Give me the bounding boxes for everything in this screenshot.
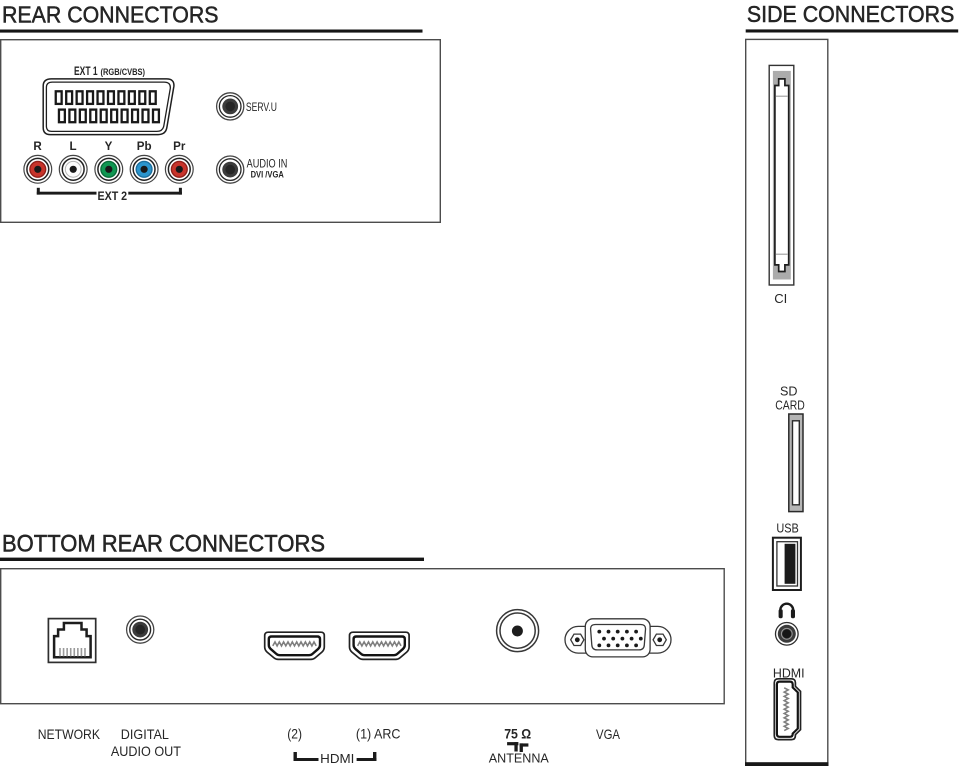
svg-text:DVI /VGA: DVI /VGA — [251, 170, 285, 180]
svg-text:Pb: Pb — [137, 140, 152, 153]
svg-text:NETWORK: NETWORK — [38, 726, 101, 742]
svg-text:SERV.U: SERV.U — [246, 100, 277, 114]
svg-text:HDMI: HDMI — [320, 751, 354, 766]
svg-text:SIDE CONNECTORS: SIDE CONNECTORS — [747, 1, 955, 27]
svg-text:REAR CONNECTORS: REAR CONNECTORS — [2, 1, 219, 27]
svg-text:CI: CI — [774, 291, 787, 306]
svg-text:(2): (2) — [287, 725, 302, 741]
svg-text:DIGITAL: DIGITAL — [121, 726, 169, 742]
svg-text:Y: Y — [105, 140, 113, 153]
svg-text:(RGB/CVBS): (RGB/CVBS) — [101, 67, 146, 78]
svg-text:R: R — [33, 140, 42, 153]
svg-text:SD: SD — [780, 383, 798, 398]
svg-text:Pr: Pr — [173, 140, 186, 153]
svg-text:VGA: VGA — [596, 726, 621, 742]
svg-text:EXT 1: EXT 1 — [74, 64, 98, 78]
svg-text:(1) ARC: (1) ARC — [356, 725, 401, 741]
svg-text:ANTENNA: ANTENNA — [489, 751, 549, 766]
svg-text:EXT 2: EXT 2 — [97, 189, 127, 203]
svg-text:BOTTOM REAR CONNECTORS: BOTTOM REAR CONNECTORS — [2, 531, 325, 558]
svg-text:CARD: CARD — [775, 398, 805, 413]
svg-text:USB: USB — [776, 521, 799, 536]
svg-text:AUDIO OUT: AUDIO OUT — [111, 743, 182, 759]
svg-text:75 Ω: 75 Ω — [504, 726, 531, 741]
svg-text:L: L — [69, 140, 76, 153]
svg-text:AUDIO IN: AUDIO IN — [247, 156, 288, 170]
